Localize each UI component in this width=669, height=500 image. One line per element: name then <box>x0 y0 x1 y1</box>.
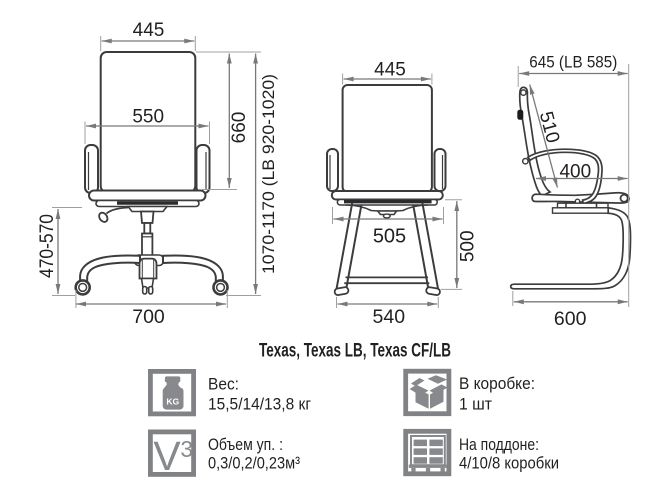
svg-text:3: 3 <box>180 436 193 462</box>
svg-text:510: 510 <box>535 109 563 145</box>
svg-text:470-570: 470-570 <box>37 214 58 278</box>
svg-text:500: 500 <box>458 230 479 262</box>
svg-text:KG: KG <box>166 397 179 407</box>
svg-text:4/10/8 коробки: 4/10/8 коробки <box>459 454 559 473</box>
svg-text:540: 540 <box>373 306 406 328</box>
svg-text:На поддоне:: На поддоне: <box>459 435 539 454</box>
svg-text:445: 445 <box>374 60 406 81</box>
svg-text:0,3/0,2/0,23м³: 0,3/0,2/0,23м³ <box>208 454 300 473</box>
svg-text:Объем уп. :: Объем уп. : <box>208 435 283 454</box>
svg-text:1 шт: 1 шт <box>459 395 492 414</box>
svg-text:700: 700 <box>132 306 165 328</box>
svg-text:1070-1170 (LB 920-1020): 1070-1170 (LB 920-1020) <box>259 74 278 274</box>
svg-text:550: 550 <box>132 106 164 127</box>
svg-text:400: 400 <box>559 162 591 183</box>
svg-text:645 (LB 585): 645 (LB 585) <box>529 52 617 71</box>
svg-text:505: 505 <box>373 226 406 248</box>
svg-text:660: 660 <box>229 112 250 144</box>
svg-text:15,5/14/13,8 кг: 15,5/14/13,8 кг <box>208 395 311 414</box>
svg-text:Вес:: Вес: <box>208 375 239 394</box>
svg-text:Texas, Texas LB, Texas CF/LB: Texas, Texas LB, Texas CF/LB <box>259 340 451 362</box>
svg-text:445: 445 <box>133 20 165 41</box>
svg-text:V: V <box>153 433 181 479</box>
svg-text:В коробке:: В коробке: <box>459 374 535 393</box>
svg-text:600: 600 <box>554 308 587 330</box>
